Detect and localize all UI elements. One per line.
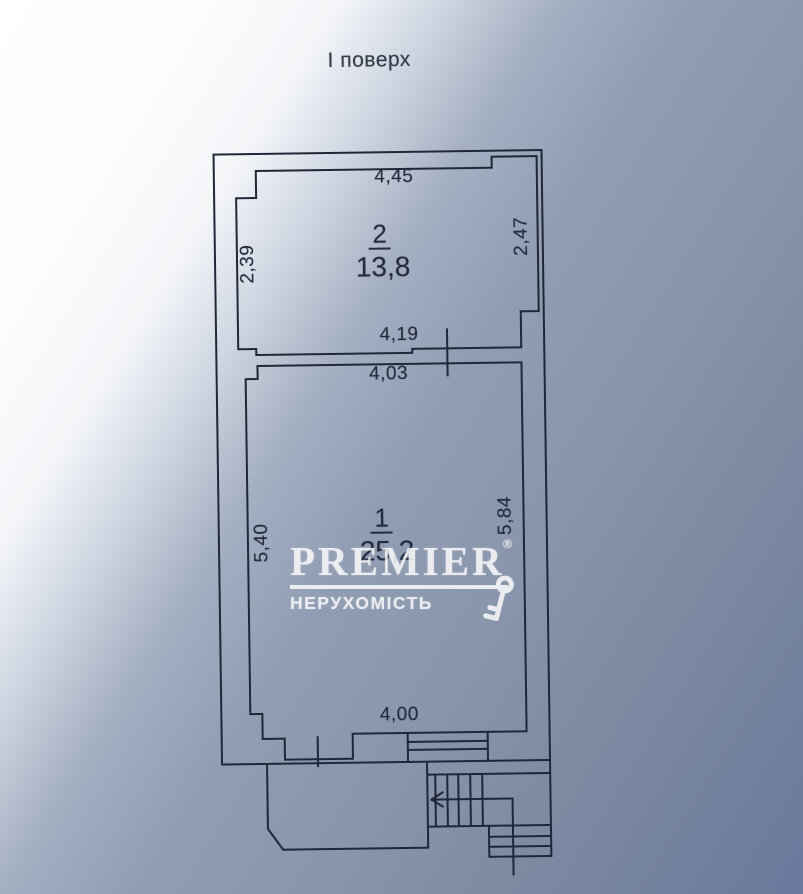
room-2-dimension-bottom: 4,19: [379, 324, 418, 347]
registered-trademark: ®: [503, 536, 513, 551]
watermark-brand: PREMIER®: [290, 541, 514, 582]
room-2-dimension-right: 2,47: [510, 217, 533, 256]
room-1-dimension-left: 5,40: [251, 523, 274, 562]
floor-title: І поверх: [327, 48, 411, 73]
floor-plan-photo: І поверх 4,45 2,39 2,47 2 13,8 4,19 4,03…: [0, 0, 803, 894]
floor-plan-drawing: [0, 0, 803, 894]
partition-door-tick: [447, 329, 448, 375]
room-1-dimension-right: 5,84: [494, 496, 517, 535]
room-1-number: 1: [370, 504, 393, 534]
room-2-dimension-left: 2,39: [237, 244, 260, 283]
room-2-area: 13,8: [356, 251, 411, 284]
stairs-direction-arrow: [431, 791, 513, 875]
agency-watermark: PREMIER® НЕРУХОМІСТЬ: [290, 541, 514, 614]
room-1-dimension-top: 4,03: [369, 363, 408, 386]
watermark-brand-text: PREMIER: [290, 538, 505, 584]
room-2-dimension-top: 4,45: [374, 166, 413, 189]
window: [408, 732, 488, 762]
staircase: [427, 760, 551, 858]
watermark-rule: [290, 585, 508, 589]
paper-plane: І поверх 4,45 2,39 2,47 2 13,8 4,19 4,03…: [0, 0, 803, 894]
porch-outline: [267, 762, 428, 850]
room-1-dimension-bottom: 4,00: [380, 704, 419, 727]
room-2-number: 2: [368, 220, 391, 250]
